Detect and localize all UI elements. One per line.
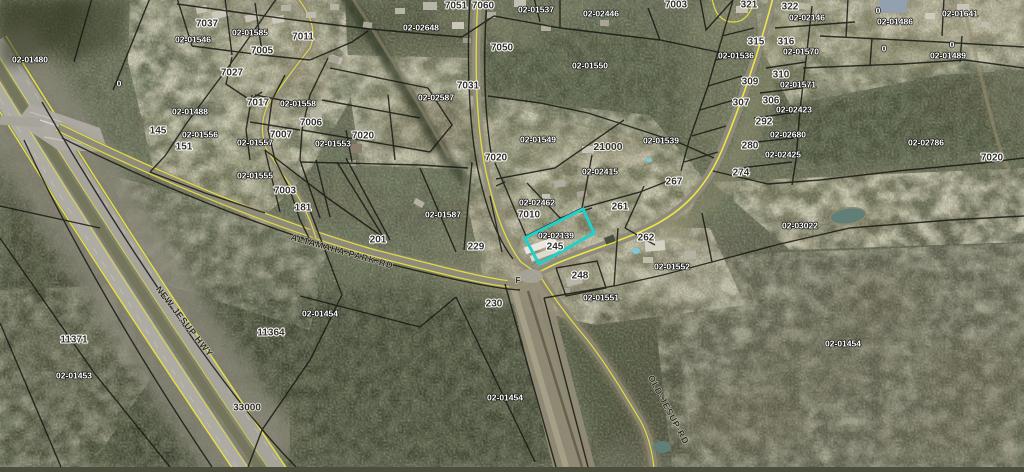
svg-text:11371: 11371 [60, 335, 88, 346]
svg-text:02-02146: 02-02146 [789, 12, 825, 22]
svg-text:02-01536: 02-01536 [718, 50, 754, 60]
svg-text:7020: 7020 [981, 153, 1004, 164]
svg-text:02-01557: 02-01557 [237, 137, 273, 147]
svg-text:145: 145 [150, 126, 167, 137]
svg-text:322: 322 [782, 2, 799, 13]
svg-text:201: 201 [370, 235, 387, 246]
svg-text:7003: 7003 [274, 186, 297, 197]
svg-text:7010: 7010 [518, 210, 541, 221]
svg-text:261: 261 [612, 202, 629, 213]
svg-text:7011: 7011 [292, 32, 314, 43]
svg-text:02-01587: 02-01587 [425, 209, 461, 219]
svg-text:02-01454: 02-01454 [487, 392, 523, 402]
svg-text:02-01489: 02-01489 [930, 50, 966, 60]
svg-text:21000: 21000 [593, 141, 622, 153]
svg-text:7020: 7020 [352, 131, 375, 142]
svg-text:02-02415: 02-02415 [582, 166, 618, 176]
svg-text:02-02462: 02-02462 [519, 197, 555, 207]
svg-text:33000: 33000 [233, 403, 261, 414]
svg-text:309: 309 [742, 77, 759, 88]
svg-text:02-01488: 02-01488 [172, 106, 208, 116]
svg-text:321: 321 [741, 0, 758, 11]
svg-text:02-02587: 02-02587 [418, 92, 454, 102]
svg-text:7031: 7031 [457, 81, 480, 92]
svg-text:02-01571: 02-01571 [780, 79, 816, 89]
svg-text:02-01480: 02-01480 [12, 54, 48, 64]
svg-text:11364: 11364 [257, 328, 285, 339]
svg-text:02-01549: 02-01549 [520, 134, 556, 144]
svg-text:7020: 7020 [485, 153, 508, 164]
svg-text:229: 229 [468, 242, 485, 253]
svg-text:267: 267 [666, 177, 683, 188]
svg-text:181: 181 [295, 203, 312, 214]
svg-text:280: 280 [742, 141, 759, 152]
svg-text:F: F [516, 276, 521, 285]
svg-text:7037: 7037 [196, 19, 219, 30]
svg-text:0: 0 [950, 39, 955, 49]
svg-text:7005: 7005 [251, 46, 274, 57]
svg-text:7007: 7007 [270, 130, 293, 141]
svg-text:02-01453: 02-01453 [56, 370, 92, 380]
svg-text:02-01546: 02-01546 [175, 34, 211, 44]
svg-text:02-01454: 02-01454 [825, 338, 861, 348]
svg-text:7051: 7051 [445, 1, 468, 12]
svg-text:02-02446: 02-02446 [583, 8, 619, 18]
svg-text:02-01555: 02-01555 [237, 170, 273, 180]
svg-text:02-01641: 02-01641 [942, 8, 978, 18]
svg-text:307: 307 [733, 98, 750, 109]
svg-text:02-01556: 02-01556 [182, 129, 218, 139]
svg-text:0: 0 [882, 43, 887, 53]
svg-text:02-03022: 02-03022 [782, 220, 818, 230]
svg-text:02-01585: 02-01585 [232, 27, 268, 37]
svg-text:7003: 7003 [665, 0, 688, 11]
svg-text:02-02680: 02-02680 [770, 129, 806, 139]
svg-text:7017: 7017 [247, 98, 270, 109]
svg-text:02-01550: 02-01550 [572, 60, 608, 70]
svg-text:0: 0 [876, 5, 881, 15]
svg-text:02-01552: 02-01552 [654, 261, 690, 271]
svg-text:02-01570: 02-01570 [783, 46, 819, 56]
svg-text:02-01553: 02-01553 [315, 138, 351, 148]
svg-text:151: 151 [176, 142, 193, 153]
svg-text:02-01551: 02-01551 [583, 292, 619, 302]
svg-text:7006: 7006 [300, 118, 323, 129]
svg-text:02-02423: 02-02423 [776, 104, 812, 114]
svg-text:02-01558: 02-01558 [280, 98, 316, 108]
svg-text:0: 0 [117, 78, 122, 88]
svg-text:230: 230 [486, 299, 503, 310]
svg-text:02-02139: 02-02139 [538, 230, 574, 240]
svg-text:248: 248 [572, 271, 589, 282]
svg-text:315: 315 [748, 37, 765, 48]
svg-text:274: 274 [733, 168, 750, 179]
svg-text:292: 292 [756, 117, 773, 128]
svg-text:02-01537: 02-01537 [518, 4, 554, 14]
svg-text:02-01486: 02-01486 [877, 16, 913, 26]
svg-text:02-02786: 02-02786 [908, 137, 944, 147]
svg-text:7050: 7050 [491, 43, 514, 54]
svg-text:262: 262 [638, 233, 655, 244]
svg-text:245: 245 [547, 242, 564, 253]
svg-text:02-01539: 02-01539 [643, 135, 679, 145]
svg-text:02-02648: 02-02648 [403, 22, 439, 32]
svg-text:7027: 7027 [221, 68, 244, 79]
svg-text:02-01454: 02-01454 [302, 308, 338, 318]
svg-text:02-02425: 02-02425 [765, 149, 801, 159]
svg-text:7060: 7060 [472, 1, 495, 12]
